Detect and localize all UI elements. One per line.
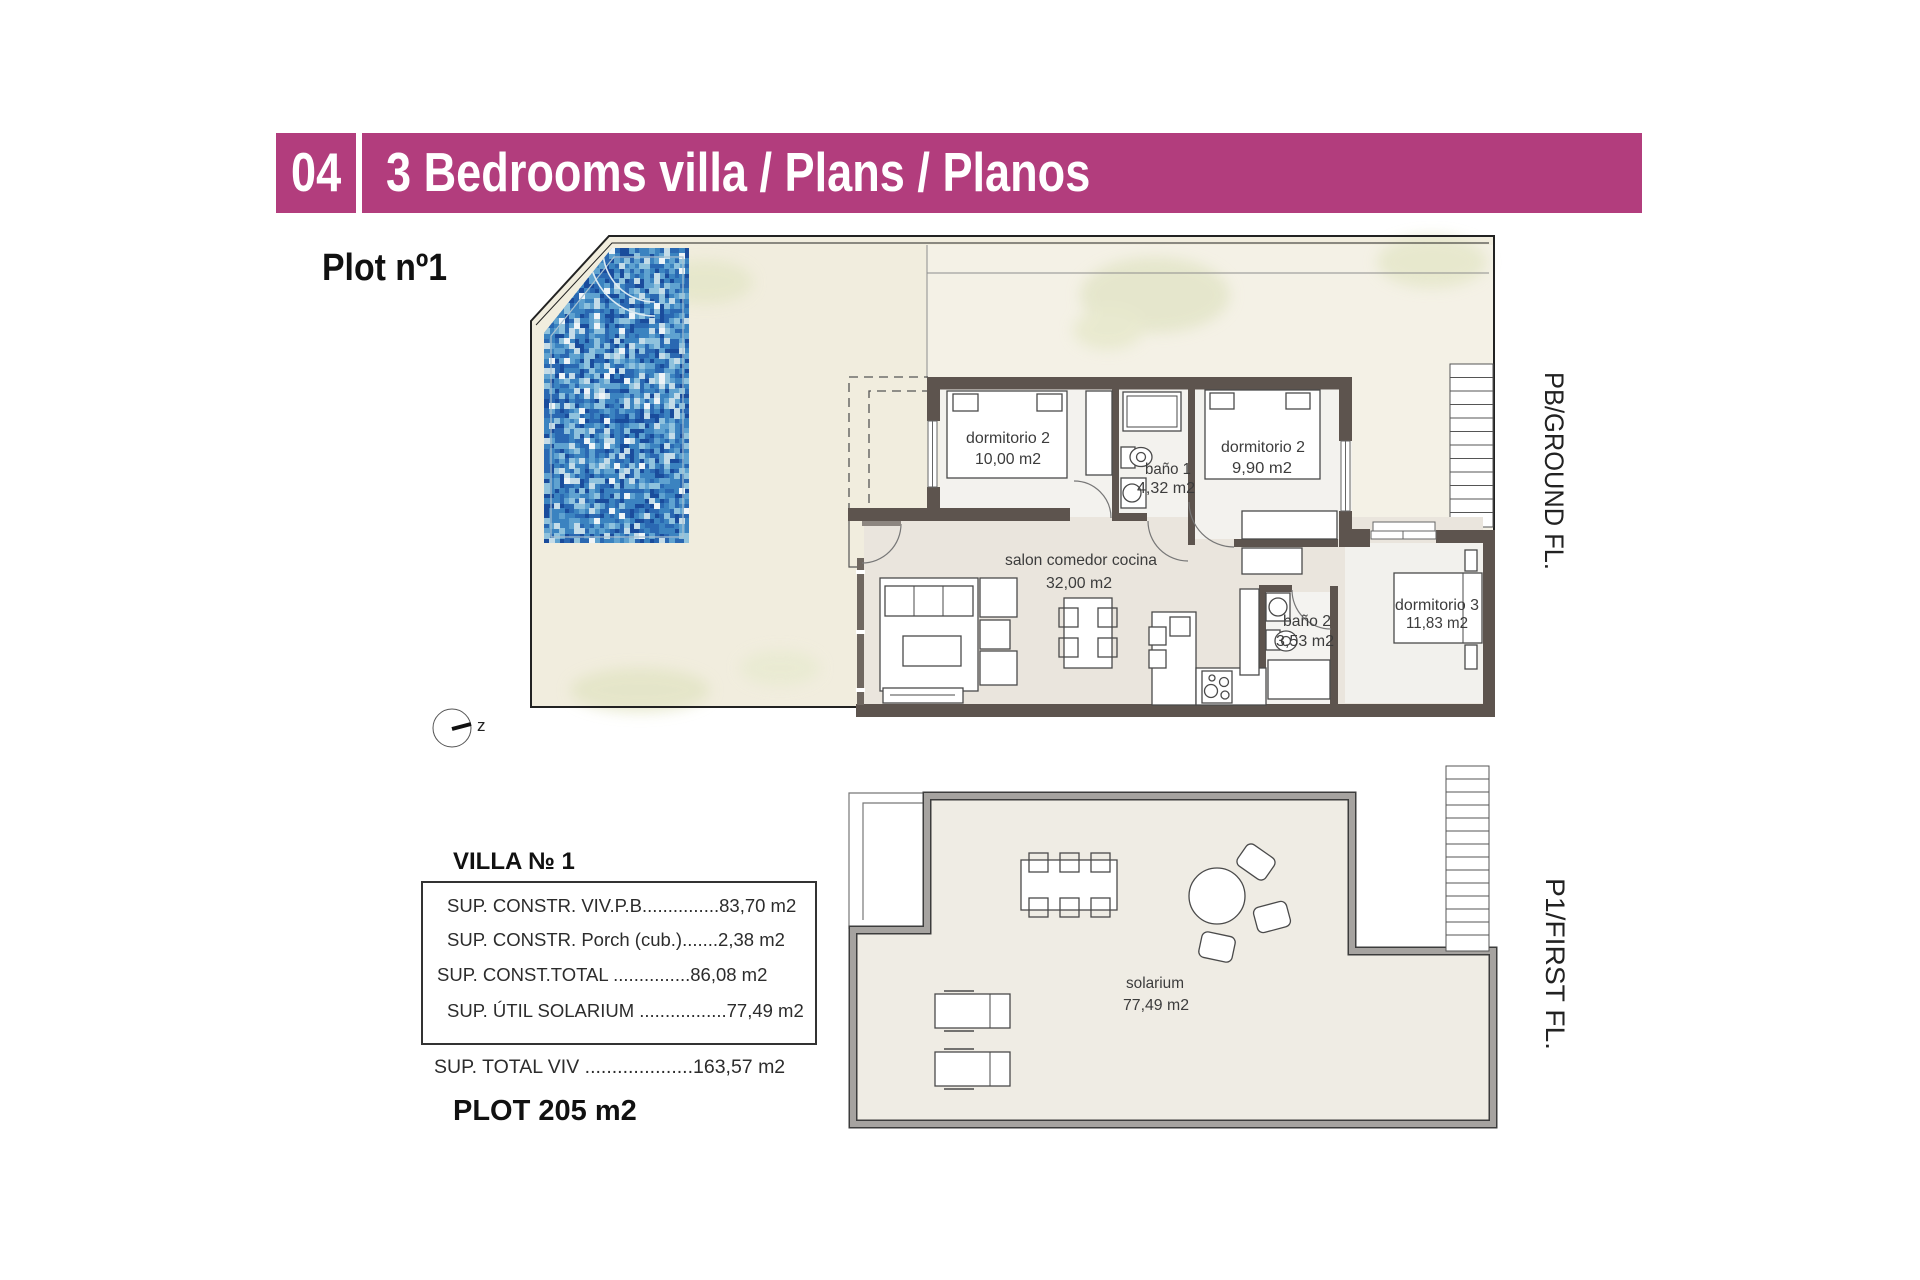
svg-text:z: z — [477, 716, 486, 735]
svg-text:11,83 m2: 11,83 m2 — [1406, 615, 1468, 632]
svg-text:3,53 m2: 3,53 m2 — [1276, 633, 1334, 650]
svg-text:77,49 m2: 77,49 m2 — [1123, 997, 1189, 1014]
svg-text:9,90 m2: 9,90 m2 — [1232, 460, 1292, 477]
svg-text:PB/GROUND FL.: PB/GROUND FL. — [1539, 372, 1569, 570]
svg-text:P1/FIRST FL.: P1/FIRST FL. — [1540, 878, 1570, 1050]
svg-text:baño 1: baño 1 — [1145, 461, 1191, 478]
svg-text:baño 2: baño 2 — [1283, 613, 1331, 630]
svg-text:dormitorio 2: dormitorio 2 — [966, 430, 1050, 447]
svg-text:10,00 m2: 10,00 m2 — [975, 451, 1041, 468]
svg-text:dormitorio 2: dormitorio 2 — [1221, 439, 1305, 456]
svg-text:dormitorio 3: dormitorio 3 — [1395, 597, 1479, 614]
svg-text:4,32 m2: 4,32 m2 — [1137, 480, 1195, 497]
svg-text:salon comedor cocina: salon comedor cocina — [1005, 552, 1157, 569]
svg-text:solarium: solarium — [1126, 975, 1184, 992]
svg-text:32,00 m2: 32,00 m2 — [1046, 575, 1112, 592]
